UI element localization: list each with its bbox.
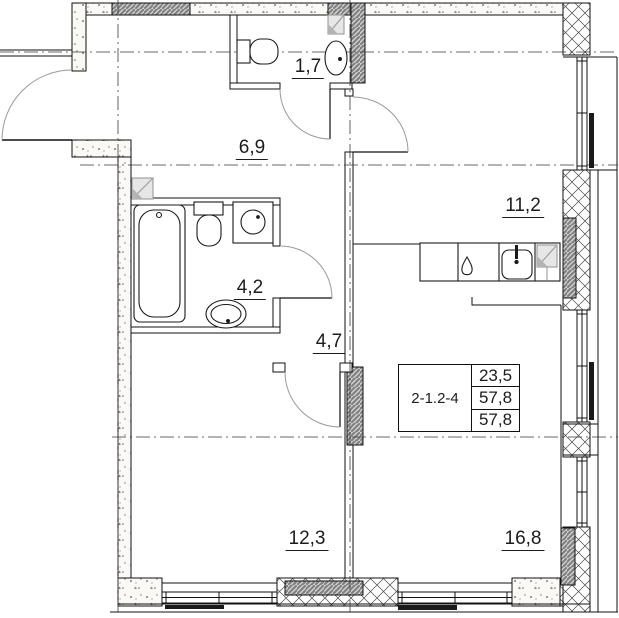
wall-entry-corner — [72, 140, 131, 157]
apartment-areas: 23,5 57,8 57,8 — [472, 365, 519, 431]
vent-shaft-icon — [328, 15, 344, 34]
kitchen-sink-icon — [502, 245, 532, 279]
room-label-bedroom: 12,3 — [286, 528, 329, 550]
wc-door-arc — [280, 89, 330, 139]
sink-icon — [206, 300, 246, 328]
kitchen-zone-divider — [472, 297, 561, 305]
apartment-number: 2-1.2-4 — [399, 365, 472, 431]
wall-right-upper-hatch — [563, 218, 576, 298]
axis-lines — [0, 0, 618, 612]
kitchen-door — [353, 97, 408, 152]
wall-corner-top-right — [563, 3, 590, 55]
wall-bottom-pier-2 — [512, 578, 560, 606]
wall-entry-left — [72, 3, 86, 71]
entry-door-arc — [2, 70, 72, 140]
bathroom-door-arc — [280, 246, 332, 298]
wall-top-hatch-left — [112, 3, 190, 15]
balcony-rail-dark-bar-2 — [398, 605, 457, 610]
room-label-bathroom: 4,2 — [234, 277, 266, 299]
window-right-b — [577, 310, 594, 422]
toilet-icon — [194, 202, 223, 246]
entry-door — [2, 70, 72, 140]
balcony-rail-dark-bar — [165, 605, 224, 609]
bedroom-door-arc — [285, 372, 340, 427]
room-label-corridor: 4,7 — [313, 331, 345, 353]
floor-plan-drawing — [0, 0, 619, 618]
loggia-door-dark-bar — [589, 362, 594, 420]
window-right-c — [577, 457, 587, 527]
room-label-living-room: 16,8 — [502, 528, 545, 550]
wc-toilet-icon — [237, 39, 278, 64]
wall-central-stub — [345, 89, 353, 96]
room-label-wc: 1,7 — [292, 56, 324, 78]
bedroom-door — [285, 372, 340, 427]
wall-wc-bottom-left — [230, 83, 280, 89]
window-right-kitchen — [577, 57, 594, 170]
kitchen-counter — [420, 243, 560, 281]
wall-left — [118, 157, 131, 578]
wall-bath-right-upper — [273, 205, 280, 246]
kitchen-door-arc — [353, 97, 408, 152]
bathroom-door — [280, 246, 332, 298]
apartment-total-area: 57,8 — [472, 409, 519, 431]
wall-central-hatch-pier — [347, 367, 363, 445]
entry-door-jambs — [72, 71, 86, 140]
window-bottom-1 — [162, 592, 277, 609]
washing-machine-icon — [233, 202, 273, 243]
hall-vent-shaft-icon — [132, 178, 153, 199]
wc-sink-icon — [325, 41, 347, 75]
wc-door — [280, 89, 330, 139]
wall-right-pier — [563, 422, 590, 457]
floor-plan: 1,7 6,9 11,2 4,2 4,7 12,3 16,8 2-1.2-4 2… — [0, 0, 619, 618]
window-bottom-2 — [398, 592, 512, 610]
apartment-area: 57,8 — [472, 386, 519, 408]
apartment-info-table: 2-1.2-4 23,5 57,8 57,8 — [398, 364, 520, 432]
bathtub-icon — [134, 205, 185, 322]
wall-right-lower-hatch — [561, 528, 575, 585]
wall-bottom-hatch — [285, 581, 363, 595]
wall-wc-left — [230, 15, 237, 88]
room-label-kitchen-living: 11,2 — [502, 195, 544, 217]
balcony-door-dark-bar — [589, 113, 594, 168]
room-label-hallway: 6,9 — [236, 137, 268, 159]
wall-corridor-bottom-left — [273, 363, 285, 372]
wall-wc-right-hatch — [351, 3, 365, 83]
wall-wc-bottom-right — [330, 83, 352, 89]
outside-corridor-lines — [0, 50, 72, 56]
wall-bath-bottom — [131, 327, 280, 333]
wall-bottom-pier-1 — [118, 578, 162, 606]
apartment-living-area: 23,5 — [472, 365, 519, 386]
